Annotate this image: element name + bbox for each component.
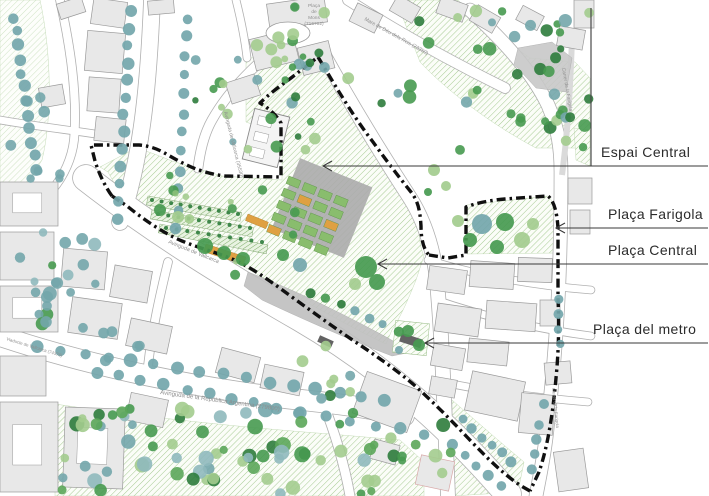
tree [16,69,26,79]
hedge-dot [164,226,168,230]
tree [30,149,41,160]
tree [348,408,358,418]
hedge-dot [239,237,243,241]
tree [78,259,89,270]
tree [411,440,421,450]
tree [321,341,332,352]
tree [345,371,355,381]
tree [497,481,507,491]
tree [108,410,118,420]
tree [63,270,74,281]
tree [251,39,263,51]
tree [43,287,57,301]
tree [294,446,310,462]
tree [419,429,429,439]
tree [116,406,128,418]
tree [525,20,536,31]
tree [13,26,23,36]
tree [228,199,234,205]
tree [379,320,387,328]
hedge-dot [217,234,221,238]
tree [34,166,43,175]
tree [177,127,187,137]
tree [218,368,230,380]
tree [301,145,311,155]
tree [329,375,338,384]
hedge-dot [207,232,211,236]
tree [125,5,137,17]
tree [181,30,192,41]
tree [5,140,16,151]
tree [394,422,406,434]
tree [483,42,497,56]
tree [404,79,417,92]
building [87,77,121,113]
tree [8,13,19,24]
tree [429,449,443,463]
tree [76,233,88,245]
tree [230,270,240,280]
tree [214,410,227,423]
tree [307,118,315,126]
tree [14,54,26,66]
tree [252,75,262,85]
tree [220,446,228,454]
tree [286,481,300,495]
hedge-dot [207,207,211,211]
tree [553,309,563,319]
tree [247,419,263,435]
tree [477,433,486,442]
tree [509,31,520,42]
tree [265,43,277,55]
tree [38,106,50,118]
tree [488,18,496,26]
tree [172,211,184,223]
tree [554,325,562,333]
tree [461,451,470,460]
tree [157,378,170,391]
hedge-dot [196,231,200,235]
tree [321,293,330,302]
tree [471,461,480,470]
urban-plan-figure: PlaçadeMons(716702)Mare de Déu dels Reis… [0,0,709,496]
tree [31,288,41,298]
tree [42,301,52,311]
tree [20,95,31,106]
building [84,30,125,73]
tree [240,407,252,419]
tree [114,161,126,173]
tree [543,66,554,77]
hedge-dot [228,235,232,239]
tree [306,59,315,68]
hedge-dot [248,226,252,230]
tree [183,193,190,200]
hedge-dot [260,240,264,244]
callout-label-placa-del-metro: Plaça del metro [593,321,696,337]
tree [94,484,107,496]
hedge-dot [207,220,211,224]
callout-label-placa-central: Plaça Central [608,242,697,258]
hedge-dot [238,224,242,228]
tree [175,402,190,417]
tree [541,117,549,125]
tree [377,99,385,107]
building [467,338,509,366]
tree [25,137,37,149]
tree [102,467,112,477]
tree [498,7,506,15]
tree [461,97,472,108]
tree [172,453,182,463]
tree [115,179,125,189]
tree [123,23,135,35]
tree [282,76,289,83]
tree [100,355,111,366]
tree [19,80,31,92]
tree [549,89,560,100]
tree [584,94,593,103]
tree [295,133,302,140]
tree [218,104,225,111]
building [147,0,174,15]
tree [12,38,24,50]
tree [274,454,284,464]
tree [350,306,359,315]
tree [180,70,189,79]
tree [121,74,133,86]
tree [179,51,189,61]
tree [365,314,375,324]
tree [578,119,591,132]
tree [515,116,526,127]
tree [258,185,267,194]
tree [309,133,321,145]
building [570,210,590,234]
building [110,265,153,303]
building [427,265,468,294]
tree [196,426,209,439]
tree [314,49,323,58]
tree [507,109,516,118]
building [485,300,537,331]
building-courtyard [13,425,42,466]
tree [452,215,464,227]
tree [287,379,300,392]
tree [361,475,374,488]
tree [397,452,407,462]
tree [247,461,260,474]
tree [179,110,189,120]
tree [148,441,158,451]
tree [135,341,145,351]
building-courtyard [77,427,108,464]
tree [290,2,299,11]
tree [192,97,198,103]
tree [122,57,134,69]
tree [76,418,90,432]
tree [124,353,138,367]
tree [91,280,99,288]
tree [112,213,123,224]
tree [277,249,289,261]
tree [128,420,137,429]
tree [291,92,300,101]
tree [145,424,158,437]
callout-label-placa-farigola: Plaça Farigola [608,206,703,222]
tree [167,439,178,450]
tree [80,461,91,472]
tree [413,339,425,351]
tree [61,454,70,463]
tree [514,232,530,248]
tree [437,468,447,478]
tree [342,72,354,84]
tree [91,418,103,430]
tree [423,37,435,49]
tree [295,416,307,428]
tree [209,85,217,93]
tree [466,423,476,433]
tree [459,415,468,424]
tree [241,372,252,383]
tree [287,28,299,40]
hedge-dot [198,206,202,210]
tree [371,422,381,432]
tree [264,377,277,390]
tree [319,7,330,18]
tree [334,445,347,458]
tree [272,31,284,43]
tree [289,231,297,239]
tree [51,278,61,288]
hedge-dot [185,229,189,233]
hedge-dot [166,214,170,218]
tree [170,467,183,480]
hedge-dot [228,223,232,227]
tree [557,45,564,52]
tree [48,261,56,269]
tree [15,252,25,262]
tree [271,141,283,153]
tree [337,300,346,309]
tree [244,145,253,154]
hedge-dot [169,201,173,205]
tree [113,196,123,206]
tree [579,143,587,151]
hedge-dot [188,204,192,208]
tree [539,399,549,409]
tree [497,447,507,457]
hedge-dot [160,200,164,204]
tree [281,56,288,63]
building [568,178,592,204]
tree [403,90,417,104]
tree [199,451,214,466]
tree [554,295,563,304]
tree [550,52,561,63]
hedge-dot [217,209,221,213]
tree [289,63,296,70]
building [469,260,515,289]
building [0,356,46,396]
tree [58,473,67,482]
tree [556,340,564,348]
tree [117,143,128,154]
tree [185,214,195,224]
tree [243,453,253,463]
tree [463,233,477,247]
tree [26,174,34,182]
tree [265,113,276,124]
tree [364,443,376,455]
tree [394,89,403,98]
tree [217,246,231,260]
tree [208,473,220,485]
tree [187,473,200,486]
building [553,448,588,492]
tree [541,24,553,36]
tree [35,92,45,102]
tree [378,394,391,407]
tree [91,367,103,379]
tree [488,441,497,450]
tree [402,325,414,337]
tree [349,278,361,290]
tree [290,208,300,218]
tree [293,258,307,272]
tree [319,62,330,73]
tree [559,14,572,27]
tree [534,420,544,430]
tree [58,485,67,494]
tree [436,418,450,432]
tree [527,464,537,474]
tree [308,382,322,396]
tree [88,238,101,251]
hedge-dot [236,212,240,216]
hedge-dot [249,238,253,242]
tree [512,69,523,80]
tree [228,204,237,213]
tree [453,13,462,22]
tree [385,432,396,443]
tree [584,8,594,18]
tree [154,204,166,216]
tree [80,349,90,359]
tree [66,288,75,297]
vallcarca-plan-map: PlaçadeMons(716702)Mare de Déu dels Reis… [0,0,709,496]
tree [367,487,375,495]
tree [505,456,516,467]
tree [117,109,128,120]
tree [345,387,355,397]
tree [183,15,193,25]
tree [178,88,189,99]
hedge-dot [217,221,221,225]
tree [483,470,494,481]
tree [355,256,377,278]
tree [121,434,135,448]
tree [561,136,571,146]
tree [55,169,65,179]
tree [78,323,88,333]
tree [236,252,250,266]
building [518,257,553,282]
tree [118,126,130,138]
hedge-dot [150,198,154,202]
tree [148,359,158,369]
tree [257,450,270,463]
tree [335,420,344,429]
tree [23,122,35,134]
tree [321,410,332,421]
tree [137,456,152,471]
tree [59,237,71,249]
tree [395,346,403,354]
tree [472,214,492,234]
tree [40,316,52,328]
tree [261,473,273,485]
tree [424,188,432,196]
tree [270,56,282,68]
tree [455,145,465,155]
tree [441,181,451,191]
tree [369,274,385,290]
tree [316,455,326,465]
tree [316,393,326,403]
tree [121,93,131,103]
tree [166,172,173,179]
tree [172,190,178,196]
tree [31,278,39,286]
tree [473,86,482,95]
tree [134,375,145,386]
tree [470,5,482,17]
tree [334,387,346,399]
building-courtyard [13,193,42,213]
tree [193,366,205,378]
tree [531,434,541,444]
tree [530,449,539,458]
building [90,0,127,28]
tree [356,391,367,402]
tree [490,240,504,254]
tree [219,80,228,89]
tree [556,28,564,36]
tree [175,166,186,177]
tree [176,146,186,156]
tree [414,16,424,26]
tree [22,110,34,122]
tree [297,355,309,367]
tree [114,370,124,380]
tree [98,328,109,339]
tree [496,213,514,231]
tree [170,223,181,234]
tree [122,40,132,50]
tree [446,448,456,458]
tree [191,55,201,65]
tree [358,453,371,466]
tree [565,112,575,122]
hedge-dot [197,218,201,222]
tree [39,228,47,236]
tree [171,362,184,375]
callout-label-espai-central: Espai Central [601,144,690,160]
tree [527,218,539,230]
